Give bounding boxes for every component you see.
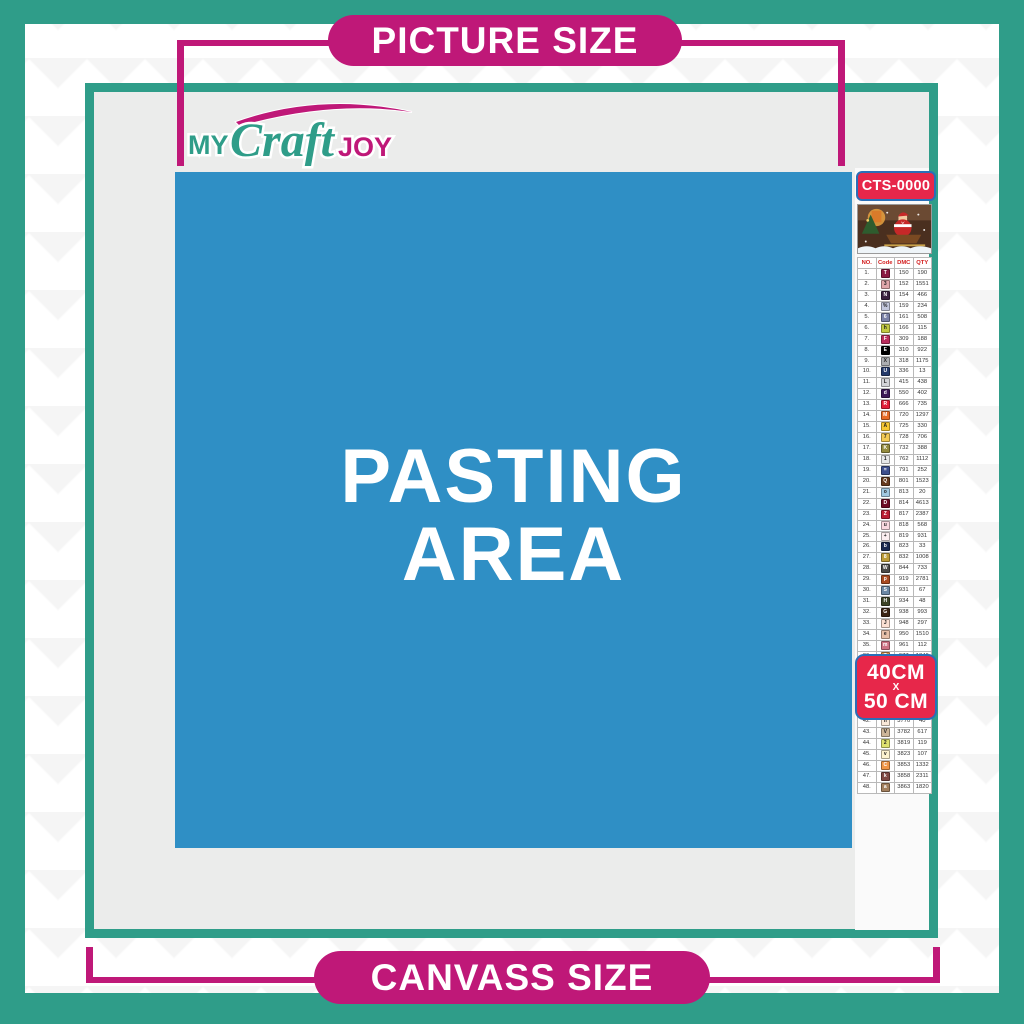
chart-cell-no: 8. <box>858 345 877 356</box>
chart-row: 29.p9192781 <box>858 575 932 586</box>
chart-cell-code: b <box>876 542 895 553</box>
chart-cell-qty: 735 <box>913 400 932 411</box>
color-symbol-chip: m <box>881 641 890 650</box>
chart-cell-no: 17. <box>858 444 877 455</box>
chart-row: 4.%159234 <box>858 301 932 312</box>
chart-row: 22.D8144613 <box>858 498 932 509</box>
color-symbol-chip: a <box>881 783 890 792</box>
chart-cell-no: 6. <box>858 323 877 334</box>
color-symbol-chip: d <box>881 389 890 398</box>
chart-cell-no: 30. <box>858 586 877 597</box>
chart-cell-no: 24. <box>858 520 877 531</box>
chart-row: 15.A725330 <box>858 422 932 433</box>
chart-cell-qty: 617 <box>913 728 932 739</box>
chart-cell-qty: 330 <box>913 422 932 433</box>
chart-cell-qty: 388 <box>913 444 932 455</box>
pasting-area-label: PASTING AREA <box>340 438 686 593</box>
chart-cell-no: 47. <box>858 772 877 783</box>
color-symbol-chip: 3 <box>881 280 890 289</box>
chart-cell-qty: 931 <box>913 531 932 542</box>
chart-cell-dmc: 3858 <box>895 772 914 783</box>
chart-cell-code: M <box>876 411 895 422</box>
chart-cell-no: 23. <box>858 509 877 520</box>
chart-cell-code: R <box>876 400 895 411</box>
chart-cell-dmc: 801 <box>895 476 914 487</box>
chart-cell-no: 27. <box>858 553 877 564</box>
product-thumbnail <box>857 204 932 254</box>
size-line3: 50 CM <box>864 692 928 712</box>
canvass-size-banner-text: CANVASS SIZE <box>371 957 654 999</box>
chart-cell-qty: 568 <box>913 520 932 531</box>
chart-cell-dmc: 948 <box>895 619 914 630</box>
chart-cell-qty: 1820 <box>913 783 932 794</box>
chart-cell-qty: 48 <box>913 597 932 608</box>
picture-size-bracket-left <box>177 40 184 166</box>
chart-cell-qty: 438 <box>913 378 932 389</box>
chart-row: 5.6161508 <box>858 312 932 323</box>
chart-cell-code: k <box>876 772 895 783</box>
chart-cell-no: 28. <box>858 564 877 575</box>
chart-row: 31.H93448 <box>858 597 932 608</box>
chart-row: 17.K732388 <box>858 444 932 455</box>
chart-cell-no: 1. <box>858 269 877 280</box>
color-symbol-chip: b <box>881 542 890 551</box>
chart-row: 32.G938993 <box>858 608 932 619</box>
chart-cell-code: N <box>876 290 895 301</box>
chart-cell-qty: 1510 <box>913 629 932 640</box>
brand-logo-graphic: MY Craft JOY <box>180 96 420 170</box>
chart-cell-dmc: 732 <box>895 444 914 455</box>
chart-cell-code: o <box>876 487 895 498</box>
color-symbol-chip: E <box>881 346 890 355</box>
chart-cell-qty: 33 <box>913 542 932 553</box>
chart-cell-dmc: 166 <box>895 323 914 334</box>
color-symbol-chip: h <box>881 324 890 333</box>
chart-cell-qty: 67 <box>913 586 932 597</box>
picture-size-banner-text: PICTURE SIZE <box>372 20 639 62</box>
chart-cell-qty: 922 <box>913 345 932 356</box>
chart-cell-code: a <box>876 783 895 794</box>
chart-cell-qty: 1008 <box>913 553 932 564</box>
color-symbol-chip: X <box>881 357 890 366</box>
chart-cell-dmc: 310 <box>895 345 914 356</box>
chart-cell-no: 22. <box>858 498 877 509</box>
chart-header-cell: NO. <box>858 258 877 269</box>
color-symbol-chip: + <box>881 532 890 541</box>
canvas-size-badge: 40CM X 50 CM <box>855 654 937 720</box>
chart-cell-dmc: 819 <box>895 531 914 542</box>
color-symbol-chip: 8 <box>881 553 890 562</box>
chart-cell-dmc: 3819 <box>895 739 914 750</box>
brand-logo: MY Craft JOY <box>180 96 420 170</box>
chart-cell-no: 16. <box>858 433 877 444</box>
chart-cell-no: 33. <box>858 619 877 630</box>
chart-cell-dmc: 161 <box>895 312 914 323</box>
chart-cell-code: m <box>876 640 895 651</box>
chart-cell-dmc: 931 <box>895 586 914 597</box>
outer-border-right <box>999 0 1024 1024</box>
chart-cell-qty: 2311 <box>913 772 932 783</box>
chart-row: 33.J948297 <box>858 619 932 630</box>
chart-cell-dmc: 762 <box>895 454 914 465</box>
chart-row: 24.u818568 <box>858 520 932 531</box>
chart-cell-dmc: 814 <box>895 498 914 509</box>
chart-cell-no: 18. <box>858 454 877 465</box>
color-symbol-chip: % <box>881 302 890 311</box>
chart-row: 26.b82333 <box>858 542 932 553</box>
chart-cell-no: 2. <box>858 279 877 290</box>
chart-cell-no: 31. <box>858 597 877 608</box>
chart-cell-qty: 993 <box>913 608 932 619</box>
chart-cell-code: 6 <box>876 312 895 323</box>
chart-row: 44.23819119 <box>858 739 932 750</box>
chart-cell-no: 45. <box>858 750 877 761</box>
color-symbol-chip: 6 <box>881 313 890 322</box>
chart-cell-dmc: 844 <box>895 564 914 575</box>
logo-text-craft: Craft <box>230 114 336 167</box>
chart-cell-code: v <box>876 750 895 761</box>
chart-cell-dmc: 309 <box>895 334 914 345</box>
chart-cell-qty: 20 <box>913 487 932 498</box>
chart-row: 14.M7201297 <box>858 411 932 422</box>
chart-row: 3.N154466 <box>858 290 932 301</box>
chart-cell-no: 21. <box>858 487 877 498</box>
chart-cell-code: S <box>876 586 895 597</box>
chart-header-cell: QTY <box>913 258 932 269</box>
color-symbol-chip: L <box>881 378 890 387</box>
product-template-page: MY Craft JOY PASTING AREA CTS-0000 <box>0 0 1024 1024</box>
color-symbol-chip: W <box>881 564 890 573</box>
color-symbol-chip: N <box>881 291 890 300</box>
chart-cell-dmc: 3853 <box>895 761 914 772</box>
chart-cell-dmc: 154 <box>895 290 914 301</box>
chart-cell-qty: 706 <box>913 433 932 444</box>
chart-row: 2.31521551 <box>858 279 932 290</box>
chart-cell-no: 10. <box>858 367 877 378</box>
chart-cell-dmc: 3863 <box>895 783 914 794</box>
chart-row: 23.Z8172387 <box>858 509 932 520</box>
chart-cell-no: 26. <box>858 542 877 553</box>
color-symbol-chip: G <box>881 608 890 617</box>
color-symbol-chip: 1 <box>881 455 890 464</box>
chart-cell-code: Q <box>876 476 895 487</box>
chart-cell-no: 19. <box>858 465 877 476</box>
canvass-size-bracket-right <box>933 947 940 983</box>
chart-row: 43.V3782617 <box>858 728 932 739</box>
color-symbol-chip: e <box>881 630 890 639</box>
chart-cell-dmc: 415 <box>895 378 914 389</box>
chart-cell-no: 48. <box>858 783 877 794</box>
chart-cell-qty: 234 <box>913 301 932 312</box>
color-symbol-chip: = <box>881 466 890 475</box>
chart-row: 12.d550402 <box>858 389 932 400</box>
chart-cell-dmc: 725 <box>895 422 914 433</box>
logo-text-my: MY <box>188 130 229 160</box>
chart-cell-qty: 733 <box>913 564 932 575</box>
chart-cell-code: A <box>876 422 895 433</box>
chart-cell-no: 3. <box>858 290 877 301</box>
chart-cell-code: + <box>876 531 895 542</box>
chart-cell-code: Z <box>876 509 895 520</box>
chart-cell-dmc: 720 <box>895 411 914 422</box>
chart-cell-code: E <box>876 345 895 356</box>
chart-cell-no: 7. <box>858 334 877 345</box>
chart-cell-no: 11. <box>858 378 877 389</box>
canvass-size-banner: CANVASS SIZE <box>314 951 710 1004</box>
color-symbol-chip: Z <box>881 510 890 519</box>
color-symbol-chip: 2 <box>881 739 890 748</box>
chart-cell-code: 8 <box>876 553 895 564</box>
chart-row: 30.S93167 <box>858 586 932 597</box>
color-symbol-chip: o <box>881 488 890 497</box>
chart-cell-code: J <box>876 619 895 630</box>
chart-cell-dmc: 318 <box>895 356 914 367</box>
chart-cell-qty: 1112 <box>913 454 932 465</box>
chart-cell-no: 9. <box>858 356 877 367</box>
chart-cell-no: 15. <box>858 422 877 433</box>
chart-cell-dmc: 817 <box>895 509 914 520</box>
chart-cell-no: 20. <box>858 476 877 487</box>
chart-cell-code: W <box>876 564 895 575</box>
chart-cell-code: 2 <box>876 739 895 750</box>
chart-cell-qty: 107 <box>913 750 932 761</box>
chart-cell-code: X <box>876 356 895 367</box>
chart-cell-code: V <box>876 728 895 739</box>
product-code-text: CTS-0000 <box>862 178 931 194</box>
chart-row: 20.Q8011523 <box>858 476 932 487</box>
color-symbol-chip: J <box>881 619 890 628</box>
chart-cell-code: C <box>876 761 895 772</box>
chart-cell-qty: 115 <box>913 323 932 334</box>
chart-header-row: NO.CodeDMCQTY <box>858 258 932 269</box>
chart-cell-no: 35. <box>858 640 877 651</box>
chart-cell-code: 1 <box>876 454 895 465</box>
chart-cell-dmc: 791 <box>895 465 914 476</box>
color-symbol-chip: Q <box>881 477 890 486</box>
chart-cell-dmc: 728 <box>895 433 914 444</box>
chart-cell-dmc: 159 <box>895 301 914 312</box>
chart-cell-dmc: 336 <box>895 367 914 378</box>
chart-cell-code: K <box>876 444 895 455</box>
chart-row: 9.X3181175 <box>858 356 932 367</box>
color-symbol-chip: F <box>881 335 890 344</box>
chart-row: 34.e9501510 <box>858 629 932 640</box>
chart-cell-no: 14. <box>858 411 877 422</box>
chart-row: 35.m961112 <box>858 640 932 651</box>
chart-row: 46.C38531332 <box>858 761 932 772</box>
chart-cell-code: 7 <box>876 433 895 444</box>
chart-cell-no: 4. <box>858 301 877 312</box>
chart-row: 6.h166115 <box>858 323 932 334</box>
chart-cell-qty: 1332 <box>913 761 932 772</box>
chart-cell-code: p <box>876 575 895 586</box>
chart-cell-code: h <box>876 323 895 334</box>
color-symbol-chip: R <box>881 400 890 409</box>
chart-cell-qty: 112 <box>913 640 932 651</box>
picture-size-bracket-right <box>838 40 845 166</box>
pasting-area: PASTING AREA <box>175 172 852 848</box>
chart-cell-qty: 1297 <box>913 411 932 422</box>
chart-cell-qty: 297 <box>913 619 932 630</box>
chart-cell-code: e <box>876 629 895 640</box>
chart-cell-qty: 4613 <box>913 498 932 509</box>
chart-cell-dmc: 813 <box>895 487 914 498</box>
chart-cell-qty: 1175 <box>913 356 932 367</box>
chart-cell-qty: 188 <box>913 334 932 345</box>
chart-row: 25.+819931 <box>858 531 932 542</box>
chart-cell-no: 46. <box>858 761 877 772</box>
color-symbol-chip: k <box>881 772 890 781</box>
chart-cell-code: u <box>876 520 895 531</box>
chart-cell-qty: 1523 <box>913 476 932 487</box>
chart-cell-qty: 2387 <box>913 509 932 520</box>
color-symbol-chip: T <box>881 269 890 278</box>
chart-cell-dmc: 919 <box>895 575 914 586</box>
chart-cell-dmc: 934 <box>895 597 914 608</box>
chart-cell-no: 43. <box>858 728 877 739</box>
chart-cell-code: 3 <box>876 279 895 290</box>
chart-cell-code: G <box>876 608 895 619</box>
chart-cell-dmc: 150 <box>895 269 914 280</box>
color-symbol-chip: K <box>881 444 890 453</box>
logo-text-joy: JOY <box>338 132 392 162</box>
chart-cell-qty: 2781 <box>913 575 932 586</box>
chart-cell-qty: 1551 <box>913 279 932 290</box>
chart-cell-code: T <box>876 269 895 280</box>
chart-row: 18.17621112 <box>858 454 932 465</box>
chart-cell-dmc: 961 <box>895 640 914 651</box>
chart-cell-dmc: 3782 <box>895 728 914 739</box>
chart-cell-dmc: 823 <box>895 542 914 553</box>
chart-row: 10.U33613 <box>858 367 932 378</box>
chart-row: 1.T150190 <box>858 269 932 280</box>
color-symbol-chip: D <box>881 499 890 508</box>
chart-cell-dmc: 666 <box>895 400 914 411</box>
chart-cell-no: 29. <box>858 575 877 586</box>
chart-cell-dmc: 152 <box>895 279 914 290</box>
canvass-size-bracket-left <box>86 947 93 983</box>
chart-cell-code: % <box>876 301 895 312</box>
pasting-area-line1: PASTING <box>340 438 686 516</box>
chart-cell-qty: 252 <box>913 465 932 476</box>
product-thumbnail-image <box>858 205 931 253</box>
chart-row: 16.7728706 <box>858 433 932 444</box>
chart-row: 27.88321008 <box>858 553 932 564</box>
color-symbol-chip: A <box>881 422 890 431</box>
color-symbol-chip: C <box>881 761 890 770</box>
pasting-area-line2: AREA <box>340 516 686 594</box>
chart-cell-qty: 402 <box>913 389 932 400</box>
chart-cell-qty: 190 <box>913 269 932 280</box>
chart-row: 19.=791252 <box>858 465 932 476</box>
color-symbol-chip: U <box>881 367 890 376</box>
chart-cell-no: 34. <box>858 629 877 640</box>
chart-row: 13.R666735 <box>858 400 932 411</box>
chart-cell-no: 32. <box>858 608 877 619</box>
chart-row: 47.k38582311 <box>858 772 932 783</box>
chart-cell-dmc: 950 <box>895 629 914 640</box>
chart-row: 11.L415438 <box>858 378 932 389</box>
chart-row: 21.o81320 <box>858 487 932 498</box>
chart-cell-no: 12. <box>858 389 877 400</box>
color-symbol-chip: S <box>881 586 890 595</box>
chart-cell-code: H <box>876 597 895 608</box>
chart-cell-no: 13. <box>858 400 877 411</box>
color-symbol-chip: 7 <box>881 433 890 442</box>
chart-cell-code: U <box>876 367 895 378</box>
chart-cell-no: 5. <box>858 312 877 323</box>
chart-cell-dmc: 832 <box>895 553 914 564</box>
chart-row: 7.F309188 <box>858 334 932 345</box>
chart-cell-code: F <box>876 334 895 345</box>
chart-cell-qty: 466 <box>913 290 932 301</box>
chart-cell-dmc: 550 <box>895 389 914 400</box>
color-symbol-chip: v <box>881 750 890 759</box>
chart-header-cell: DMC <box>895 258 914 269</box>
picture-size-banner: PICTURE SIZE <box>328 15 682 66</box>
chart-cell-dmc: 3823 <box>895 750 914 761</box>
size-line1: 40CM <box>867 663 925 683</box>
color-symbol-chip: H <box>881 597 890 606</box>
product-code-badge: CTS-0000 <box>856 171 936 201</box>
chart-cell-no: 25. <box>858 531 877 542</box>
chart-cell-dmc: 938 <box>895 608 914 619</box>
chart-row: 48.a38631820 <box>858 783 932 794</box>
color-symbol-chip: p <box>881 575 890 584</box>
chart-row: 28.W844733 <box>858 564 932 575</box>
chart-cell-qty: 119 <box>913 739 932 750</box>
color-symbol-chip: M <box>881 411 890 420</box>
chart-cell-qty: 13 <box>913 367 932 378</box>
chart-cell-code: d <box>876 389 895 400</box>
color-symbol-chip: u <box>881 521 890 530</box>
chart-cell-code: = <box>876 465 895 476</box>
chart-cell-qty: 508 <box>913 312 932 323</box>
color-symbol-chip: V <box>881 728 890 737</box>
chart-cell-code: D <box>876 498 895 509</box>
chart-row: 8.E310922 <box>858 345 932 356</box>
chart-cell-code: L <box>876 378 895 389</box>
chart-cell-no: 44. <box>858 739 877 750</box>
chart-header-cell: Code <box>876 258 895 269</box>
chart-cell-dmc: 818 <box>895 520 914 531</box>
outer-border-left <box>0 0 25 1024</box>
chart-row: 45.v3823107 <box>858 750 932 761</box>
